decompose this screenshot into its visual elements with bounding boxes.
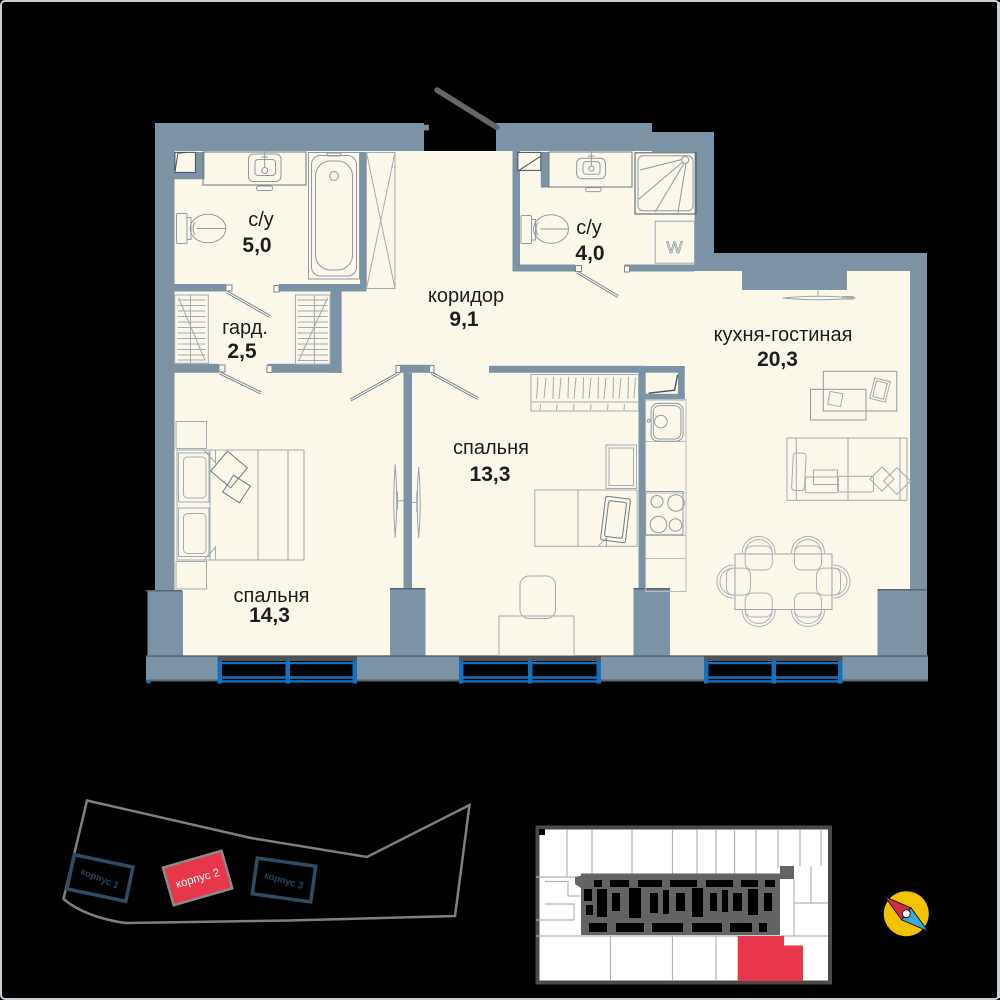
svg-text:13,3: 13,3	[470, 463, 511, 486]
svg-text:5,0: 5,0	[242, 234, 271, 257]
svg-text:с/у: с/у	[576, 217, 602, 239]
svg-text:14,3: 14,3	[249, 604, 290, 627]
svg-text:2,5: 2,5	[227, 340, 257, 363]
svg-text:W: W	[666, 238, 682, 257]
svg-text:20,3: 20,3	[757, 348, 798, 371]
svg-text:кухня-гостиная: кухня-гостиная	[714, 324, 853, 346]
svg-text:спальня: спальня	[453, 437, 529, 459]
svg-text:9,1: 9,1	[449, 308, 479, 331]
svg-text:4,0: 4,0	[575, 242, 604, 265]
svg-text:гард.: гард.	[222, 317, 268, 339]
svg-text:с/у: с/у	[248, 209, 274, 231]
svg-text:коридор: коридор	[428, 285, 504, 307]
